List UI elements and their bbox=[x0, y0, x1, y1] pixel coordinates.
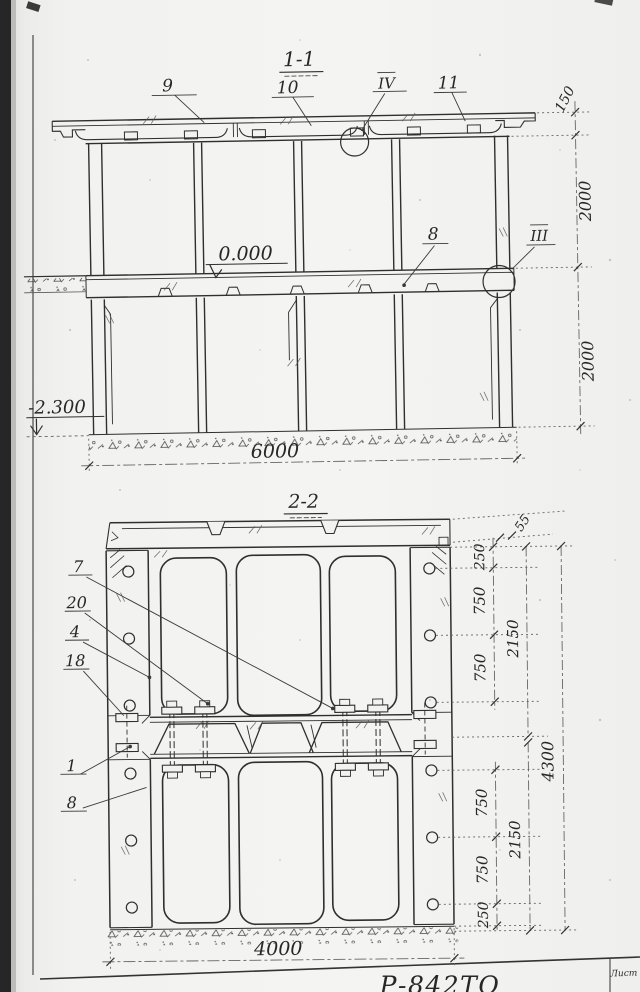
dim-150-label: 150 bbox=[552, 84, 578, 115]
top-slab-linework bbox=[106, 519, 450, 549]
dim-2000-lower-label: 2000 bbox=[578, 340, 598, 382]
sheet-frame bbox=[33, 35, 640, 992]
dim-250-bottom-label: 250 bbox=[476, 901, 492, 929]
bolt-1 bbox=[162, 701, 183, 781]
upper-walls-linework bbox=[89, 135, 510, 275]
section2-title-underline bbox=[284, 513, 328, 517]
mid-floor-slab-linework bbox=[86, 268, 514, 297]
section2-weld-marks bbox=[116, 523, 451, 854]
bolt-assemblies bbox=[116, 698, 437, 781]
callout-III-label: III bbox=[529, 227, 549, 245]
section-2-2: 2-2 7 20 4 18 1 8 55 250 750 750 2150 75… bbox=[58, 488, 578, 970]
dim-4000-label: 4000 bbox=[253, 938, 303, 961]
dim-750-a-label: 750 bbox=[471, 586, 489, 615]
section1-dimension-lines bbox=[511, 101, 595, 436]
panel-openings bbox=[160, 554, 399, 925]
section2-callout-leaders bbox=[58, 572, 335, 811]
callout-18-label: 18 bbox=[65, 651, 86, 670]
bolt-3 bbox=[335, 699, 356, 779]
detail-circle-III bbox=[483, 265, 516, 298]
bolt-2 bbox=[195, 701, 216, 781]
callout-20-label: 20 bbox=[65, 593, 87, 612]
callout-IV-label: IV bbox=[377, 74, 397, 92]
section2-dimension-chains bbox=[435, 511, 577, 935]
dim-2150-top-label: 2150 bbox=[504, 619, 522, 659]
callout-8b-label: 8 bbox=[67, 793, 77, 812]
section2-title: 2-2 bbox=[287, 491, 319, 513]
dim-250-top-label: 250 bbox=[472, 543, 488, 571]
sheet-box-label: Лист bbox=[609, 969, 637, 980]
roof-slab-linework bbox=[52, 113, 535, 144]
document-code: Р-842ТО bbox=[379, 971, 501, 992]
callout-8-label: 8 bbox=[428, 225, 439, 245]
middle-band-linework bbox=[150, 715, 412, 759]
callout-10-label: 10 bbox=[277, 78, 299, 98]
lower-walls-linework bbox=[86, 292, 516, 434]
side-walls-linework bbox=[106, 546, 454, 928]
section1-title: 1-1 bbox=[283, 47, 316, 72]
dim-2000-upper-label: 2000 bbox=[575, 180, 595, 222]
callout-9-label: 9 bbox=[162, 76, 173, 96]
section-1-1: 1-1 9 10 IV 11 8 III 0.000 -2.300 150 20… bbox=[20, 42, 599, 473]
level-zero-label: 0.000 bbox=[218, 242, 273, 265]
dim-750-c-label: 750 bbox=[473, 788, 491, 817]
bolt-4 bbox=[368, 699, 389, 779]
dim-750-d-label: 750 bbox=[473, 855, 491, 884]
callout-11-label: 11 bbox=[438, 73, 460, 93]
paper-speckles bbox=[54, 39, 631, 951]
callout-1-label: 1 bbox=[66, 756, 76, 775]
section1-title-underline bbox=[279, 72, 323, 77]
dim-2150-bottom-label: 2150 bbox=[506, 820, 524, 860]
dim-750-b-label: 750 bbox=[471, 653, 489, 682]
drawing-canvas: 1-1 9 10 IV 11 8 III 0.000 -2.300 150 20… bbox=[0, 0, 640, 992]
level-bottom-label: -2.300 bbox=[28, 397, 86, 419]
callout-7-label: 7 bbox=[73, 557, 84, 576]
scanned-drawing-sheet: 1-1 9 10 IV 11 8 III 0.000 -2.300 150 20… bbox=[0, 0, 640, 992]
dim-6000-label: 6000 bbox=[251, 440, 300, 463]
callout-4-label: 4 bbox=[69, 622, 80, 641]
dim-55-label: 55 bbox=[512, 512, 534, 534]
dim-4300-label: 4300 bbox=[538, 741, 557, 783]
